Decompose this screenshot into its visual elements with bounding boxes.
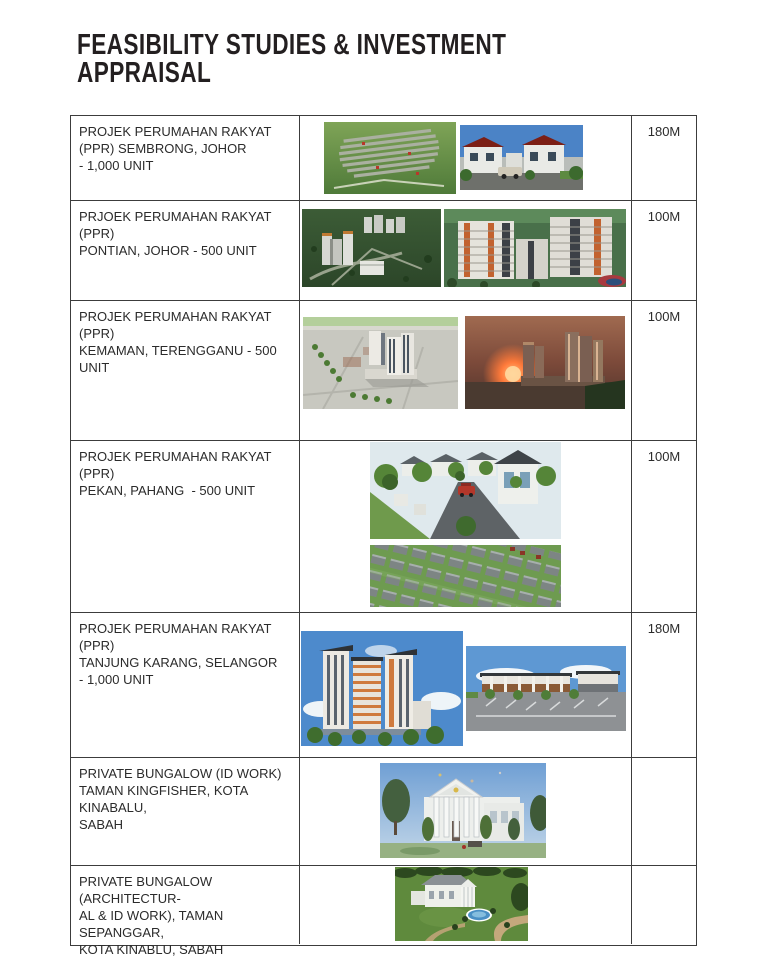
project-photo-sepanggar-mansion <box>395 867 528 941</box>
project-photo-kingfisher-mansion <box>380 763 546 858</box>
project-photo-tanjung-towers <box>301 631 463 746</box>
project-title-line: AL & ID WORK), TAMAN SEPANGGAR, <box>79 907 289 941</box>
project-title-line: PONTIAN, JOHOR - 500 UNIT <box>79 242 289 259</box>
table-row: PROJEK PERUMAHAN RAKYAT (PPR) KEMAMAN, T… <box>71 301 696 441</box>
table-row: PROJEK PERUMAHAN RAKYAT (PPR) SEMBRONG, … <box>71 116 696 201</box>
project-photo-sembrong-aerial <box>324 122 456 194</box>
project-title-cell: PROJEK PERUMAHAN RAKYAT (PPR) TANJUNG KA… <box>71 613 300 757</box>
project-photo-kemaman-sunset <box>465 316 625 409</box>
project-title-cell: PROJEK PERUMAHAN RAKYAT (PPR) SEMBRONG, … <box>71 116 300 200</box>
project-title-line: KEMAMAN, TERENGGANU - 500 UNIT <box>79 342 289 376</box>
project-title-line: PROJEK PERUMAHAN RAKYAT (PPR) <box>79 620 289 654</box>
project-title-line: PEKAN, PAHANG - 500 UNIT <box>79 482 289 499</box>
project-value: 180M <box>648 124 681 139</box>
table-row: PRIVATE BUNGALOW (ID WORK) TAMAN KINGFIS… <box>71 758 696 866</box>
table-row: PROJEK PERUMAHAN RAKYAT (PPR) TANJUNG KA… <box>71 613 696 758</box>
project-value: 180M <box>648 621 681 636</box>
project-photo-tanjung-shops <box>466 646 626 731</box>
project-value: 100M <box>648 449 681 464</box>
page-title-line-1: FEASIBILITY STUDIES & INVESTMENT <box>77 31 506 59</box>
project-title-line: SABAH <box>79 816 289 833</box>
project-title-line: PRIVATE BUNGALOW (ARCHITECTUR- <box>79 873 289 907</box>
project-photo-sembrong-street <box>460 125 583 190</box>
project-images-cell <box>300 441 632 612</box>
projects-table: PROJEK PERUMAHAN RAKYAT (PPR) SEMBRONG, … <box>70 115 697 946</box>
project-title-line: TANJUNG KARANG, SELANGOR <box>79 654 289 671</box>
project-value-cell: 100M <box>632 441 696 612</box>
document-page: { "page": { "title_line1": "FEASIBILITY … <box>0 0 767 959</box>
table-row: PRIVATE BUNGALOW (ARCHITECTUR- AL & ID W… <box>71 866 696 944</box>
project-value: 100M <box>648 209 681 224</box>
project-title-cell: PROJEK PERUMAHAN RAKYAT (PPR) PEKAN, PAH… <box>71 441 300 612</box>
project-value-cell: 180M <box>632 613 696 757</box>
project-photo-pekan-street <box>370 442 561 539</box>
project-value-cell <box>632 866 696 944</box>
project-photo-kemaman-day <box>303 317 458 409</box>
page-title: FEASIBILITY STUDIES & INVESTMENT APPRAIS… <box>77 31 506 87</box>
project-images-cell <box>300 116 632 200</box>
page-title-line-2: APPRAISAL <box>77 59 506 87</box>
project-title-line: KOTA KINABLU, SABAH <box>79 941 289 958</box>
project-title-line: (PPR) SEMBRONG, JOHOR <box>79 140 289 157</box>
project-title-cell: PRIVATE BUNGALOW (ID WORK) TAMAN KINGFIS… <box>71 758 300 865</box>
project-value-cell: 180M <box>632 116 696 200</box>
project-images-cell <box>300 201 632 300</box>
project-title-line: TAMAN KINGFISHER, KOTA KINABALU, <box>79 782 289 816</box>
project-title-line: - 1,000 UNIT <box>79 671 289 688</box>
project-title-cell: PROJEK PERUMAHAN RAKYAT (PPR) KEMAMAN, T… <box>71 301 300 440</box>
project-title-line: PRJOEK PERUMAHAN RAKYAT (PPR) <box>79 208 289 242</box>
project-value-cell: 100M <box>632 201 696 300</box>
project-photo-pontian-aerial <box>302 209 441 287</box>
project-title-line: PROJEK PERUMAHAN RAKYAT (PPR) <box>79 448 289 482</box>
project-images-cell <box>300 758 632 865</box>
project-title-cell: PRJOEK PERUMAHAN RAKYAT (PPR) PONTIAN, J… <box>71 201 300 300</box>
project-images-cell <box>300 866 632 944</box>
project-title-line: PROJEK PERUMAHAN RAKYAT <box>79 123 289 140</box>
table-row: PROJEK PERUMAHAN RAKYAT (PPR) PEKAN, PAH… <box>71 441 696 613</box>
table-row: PRJOEK PERUMAHAN RAKYAT (PPR) PONTIAN, J… <box>71 201 696 301</box>
project-images-cell <box>300 301 632 440</box>
project-title-line: PRIVATE BUNGALOW (ID WORK) <box>79 765 289 782</box>
project-photo-pekan-aerial <box>370 545 561 607</box>
project-images-cell <box>300 613 632 757</box>
project-title-line: - 1,000 UNIT <box>79 157 289 174</box>
project-title-line: PROJEK PERUMAHAN RAKYAT (PPR) <box>79 308 289 342</box>
project-photo-pontian-blocks <box>444 209 626 287</box>
project-value-cell: 100M <box>632 301 696 440</box>
project-value: 100M <box>648 309 681 324</box>
project-title-cell: PRIVATE BUNGALOW (ARCHITECTUR- AL & ID W… <box>71 866 300 944</box>
project-value-cell <box>632 758 696 865</box>
